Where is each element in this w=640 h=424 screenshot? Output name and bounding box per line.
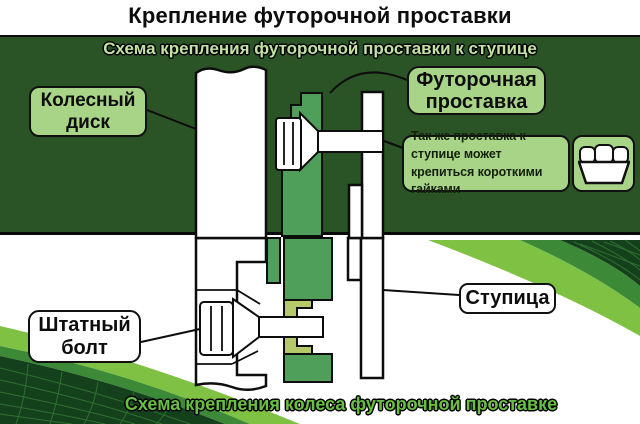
- spacer-bolt-shaft: [318, 131, 383, 152]
- leader-note: [384, 141, 403, 148]
- wheel-disk-upper: [196, 67, 266, 238]
- callout-stock-bolt-label: Штатный болт: [30, 314, 139, 359]
- callout-wheel-disk-label: Колесный диск: [31, 90, 145, 133]
- leader-wheel-disk: [147, 110, 196, 129]
- spacer-block-upper: [284, 238, 332, 300]
- callout-stock-bolt: Штатный болт: [28, 310, 141, 363]
- short-nut-icon: [578, 143, 630, 185]
- stock-bolt-head: [200, 302, 233, 355]
- leader-stock-bolt: [141, 329, 200, 342]
- threaded-insert-lower: [284, 337, 312, 354]
- infographic: Крепление футорочной проставки Схема кре…: [0, 0, 640, 424]
- leader-hub: [383, 290, 459, 295]
- hub-flange-upper: [349, 185, 362, 238]
- callout-wheel-disk: Колесный диск: [29, 86, 147, 137]
- hub-bar-upper: [362, 92, 383, 238]
- stock-bolt-shaft: [259, 317, 323, 337]
- lower-assembly: [196, 238, 383, 390]
- lower-scheme-caption: Схема крепления колеса футорочной проста…: [0, 394, 640, 415]
- spacer-bolt-head: [276, 118, 301, 170]
- hub-bar-lower: [361, 238, 383, 378]
- callout-note: Так же проставка к ступице может крепить…: [402, 135, 570, 192]
- threaded-insert-upper: [284, 300, 312, 317]
- callout-hub: Ступица: [459, 283, 556, 314]
- callout-spacer: Футорочная проставка: [407, 66, 546, 115]
- hub-flange-lower: [348, 238, 361, 280]
- upper-assembly: [196, 67, 383, 238]
- callout-note-label: Так же проставка к ступице может крепить…: [411, 128, 566, 199]
- callout-spacer-label: Футорочная проставка: [409, 69, 544, 113]
- stock-bolt-cone: [233, 299, 259, 357]
- leader-spacer: [330, 72, 407, 93]
- callout-nut: [572, 135, 635, 192]
- spacer-block-lower: [284, 354, 332, 382]
- spacer-strip-lower: [267, 238, 280, 283]
- callout-hub-label: Ступица: [466, 287, 550, 310]
